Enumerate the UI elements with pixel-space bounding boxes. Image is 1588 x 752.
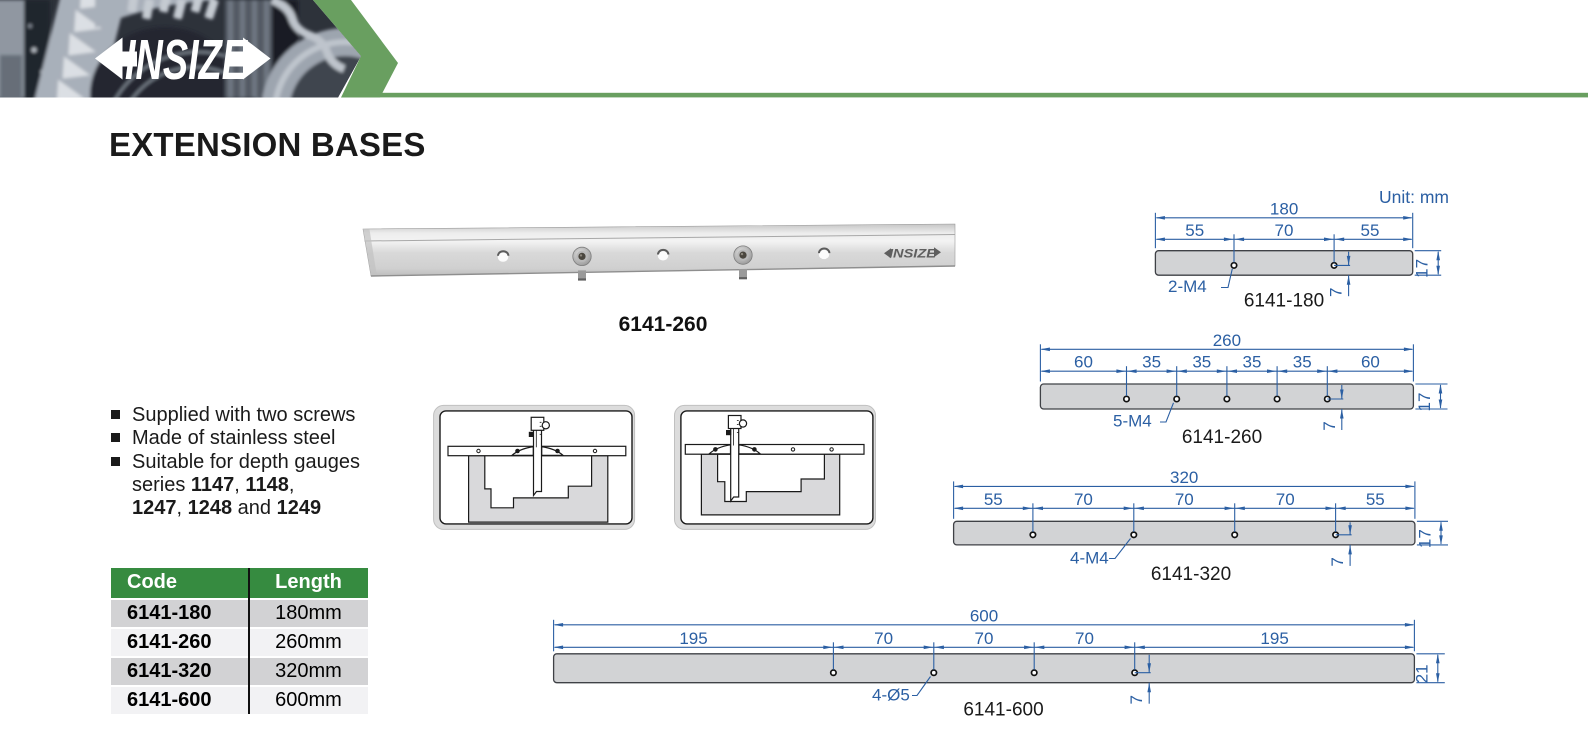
svg-text:195: 195 [1260,629,1288,648]
svg-text:7: 7 [1327,287,1346,296]
svg-text:70: 70 [874,629,893,648]
svg-text:320: 320 [1170,468,1198,487]
svg-text:6141-180: 6141-180 [1244,291,1324,312]
svg-text:60: 60 [1074,353,1093,372]
svg-text:7: 7 [1328,557,1347,566]
svg-text:17: 17 [1416,529,1435,548]
svg-text:70: 70 [1275,221,1294,240]
svg-text:60: 60 [1361,353,1380,372]
svg-text:55: 55 [1366,490,1385,509]
svg-text:Unit: mm: Unit: mm [1379,187,1449,207]
svg-text:55: 55 [1185,221,1204,240]
svg-text:600: 600 [970,606,998,625]
svg-text:180: 180 [1270,199,1298,218]
svg-text:55: 55 [984,490,1003,509]
svg-text:INSIZE: INSIZE [125,28,248,92]
svg-text:35: 35 [1192,353,1211,372]
svg-text:17: 17 [1413,259,1432,278]
svg-text:195: 195 [679,629,707,648]
svg-text:260: 260 [1213,331,1241,350]
svg-text:70: 70 [1175,490,1194,509]
svg-text:70: 70 [1075,629,1094,648]
svg-text:7: 7 [1320,421,1339,430]
svg-text:35: 35 [1293,353,1312,372]
svg-text:4-M4: 4-M4 [1070,549,1109,568]
svg-text:6141-260: 6141-260 [619,313,708,336]
svg-text:6141-320: 6141-320 [1151,564,1231,585]
svg-text:7: 7 [1127,695,1146,704]
svg-text:70: 70 [1276,490,1295,509]
svg-text:INSIZE: INSIZE [889,247,937,261]
svg-text:70: 70 [975,629,994,648]
svg-text:6141-600: 6141-600 [963,700,1043,721]
svg-text:70: 70 [1074,490,1093,509]
svg-text:2-M4: 2-M4 [1168,277,1207,296]
svg-text:6141-260: 6141-260 [1182,427,1262,448]
svg-text:4-Ø5: 4-Ø5 [872,686,910,705]
svg-text:35: 35 [1142,353,1161,372]
svg-text:5-M4: 5-M4 [1113,412,1152,431]
svg-text:21: 21 [1412,664,1431,683]
svg-text:17: 17 [1415,393,1434,412]
svg-text:55: 55 [1361,221,1380,240]
svg-text:35: 35 [1243,353,1262,372]
